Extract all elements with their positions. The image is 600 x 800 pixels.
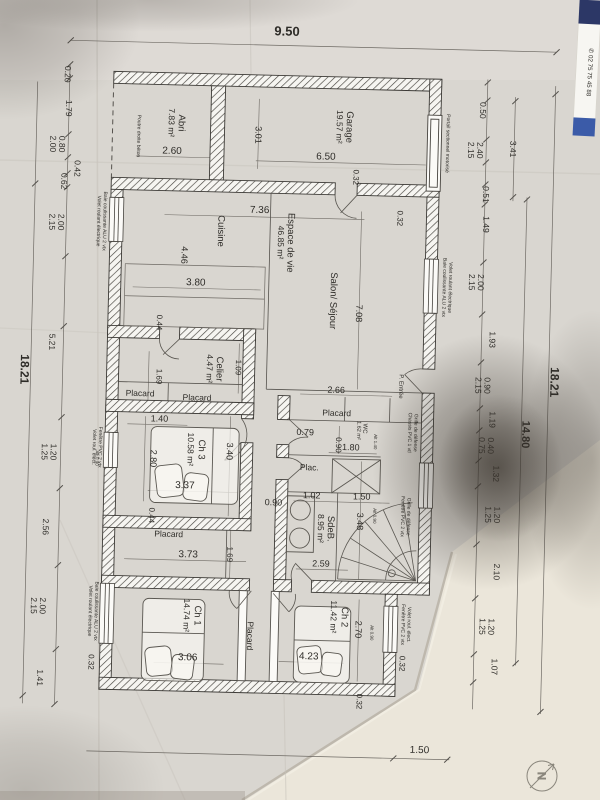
note: Poutre droite béton [135, 115, 142, 158]
room-label-placard-ch: Placard [245, 621, 256, 650]
chain-right: 1.49 [481, 216, 491, 233]
letterhead-blue-bottom [573, 117, 596, 136]
chain-left: 0.42 [72, 160, 82, 177]
dim-label: 3.06 [178, 652, 198, 663]
dim-label: 0.79 [296, 427, 314, 437]
chain-right: 2.15 [467, 274, 477, 291]
dim-label: 3.37 [175, 480, 195, 491]
dim-label: 0.90 [334, 437, 343, 453]
room-area-celier: 4.47 m² [204, 354, 215, 383]
dim-label: 0.32 [86, 654, 95, 670]
dim-label: 1.80 [342, 442, 360, 452]
chain-left: 2.56 [41, 518, 51, 535]
dim-label: 0.32 [354, 694, 363, 710]
chain-right: 3.41 [508, 141, 518, 158]
dim-label: 4.46 [179, 246, 189, 264]
dim-label: 7.36 [250, 205, 270, 216]
floor-plan-svg: 9.502.606.503.010.327.360.324.463.800.44… [0, 0, 600, 800]
note: Volet roul. élect. [405, 607, 412, 643]
chain-left: 2.15 [47, 214, 57, 231]
room-area-espace-de-vie: 46.85 m² [275, 226, 286, 260]
room-area-sdeb: 8.95 m² [316, 514, 327, 543]
dim-label: 3.48 [355, 513, 365, 531]
dim-label: 1.50 [353, 491, 371, 501]
room-area-ch3: 10.58 m² [185, 432, 196, 466]
dim-label: 2.70 [353, 621, 363, 639]
compass-letter: N [535, 772, 547, 780]
letterhead-blue-top [578, 0, 600, 25]
bottom-edge-shadow [0, 791, 245, 800]
note: Alt 0.90 [372, 508, 377, 524]
room-area-garage: 19.57 m² [334, 110, 345, 144]
dim-label: 2.59 [312, 558, 330, 568]
chain-left: 1.41 [35, 669, 45, 686]
chain-right: 0.50 [478, 102, 488, 119]
dim-top-overall: 9.50 [274, 23, 300, 39]
note: Fenêtre PVC 2 vtx [399, 604, 406, 645]
room-label-salon-sejour: Salon/ Séjour [327, 272, 339, 329]
chain-left: 2.00 [48, 136, 58, 153]
dim-label: 0.44 [155, 315, 164, 331]
chain-right: 2.15 [466, 142, 476, 159]
dim-label: 3.01 [253, 126, 263, 144]
room-label-placard-4: Placard [154, 528, 183, 539]
dim-label: 2.80 [148, 450, 158, 468]
note: Volet roulant électrique [95, 196, 102, 247]
chain-right: 1.25 [477, 618, 487, 635]
chain-right: 1.07 [489, 658, 499, 675]
room-label-placard-1: Placard [126, 388, 155, 399]
dim-label: 0.32 [351, 169, 360, 185]
room-label-ch2: Ch 2 [338, 607, 349, 627]
dim-label: 0.32 [397, 656, 406, 672]
dim-label: 1.69 [225, 546, 234, 562]
dim-label: 2.66 [327, 385, 345, 395]
room-label-cuisine: Cuisine [215, 215, 227, 247]
dim-label: 3.73 [178, 549, 198, 560]
room-area-ch2: 11.42 m² [328, 600, 339, 633]
dim-label: 1.02 [303, 490, 321, 500]
note: Alt 0.90 [94, 450, 99, 466]
chain-left: 0.62 [59, 173, 69, 190]
pillow [144, 645, 173, 676]
room-area-abri: 7.83 m² [166, 108, 177, 137]
room-label-placard-3: Placard [322, 408, 351, 419]
dim-label: 2.60 [162, 146, 182, 157]
dim-label: 7.08 [354, 305, 364, 323]
room-area-wc: 1.62 m² [355, 421, 361, 440]
room-label-plac: Plac. [300, 462, 319, 472]
dim-label: 0.90 [265, 497, 283, 507]
dim-label: 0.44 [147, 508, 156, 524]
chain-left: 2.15 [29, 597, 39, 614]
note: Volet roulant électrique [86, 585, 93, 636]
note: Volet roulant électrique [446, 262, 453, 313]
chain-left: 5.21 [47, 334, 57, 351]
room-area-ch1: 14.74 m² [181, 598, 192, 632]
room-label-placard-2: Placard [182, 392, 211, 403]
dim-label: 0.32 [395, 210, 404, 226]
garage-door [426, 115, 442, 191]
chain-right: 0.51 [481, 186, 491, 203]
overall-left: 18.21 [17, 354, 32, 385]
dim-label: 3.40 [225, 442, 235, 460]
dim-label: 6.50 [316, 151, 336, 162]
pillow [320, 652, 343, 677]
room-label-ch1: Ch 1 [191, 605, 202, 625]
dim-label: 3.80 [186, 277, 206, 288]
dim-label: 1.09 [234, 360, 243, 376]
floor-plan-photo: 9.502.606.503.010.327.360.324.463.800.44… [0, 0, 600, 800]
dim-label: 1.40 [151, 413, 169, 423]
dim-label: 1.69 [154, 369, 163, 385]
chain-left: 1.25 [39, 443, 49, 460]
dim-label: 4.23 [299, 651, 319, 662]
note: Alt 0.90 [369, 625, 374, 641]
room-label-ch3: Ch 3 [196, 439, 207, 459]
dim-bottom: 1.50 [410, 745, 430, 756]
